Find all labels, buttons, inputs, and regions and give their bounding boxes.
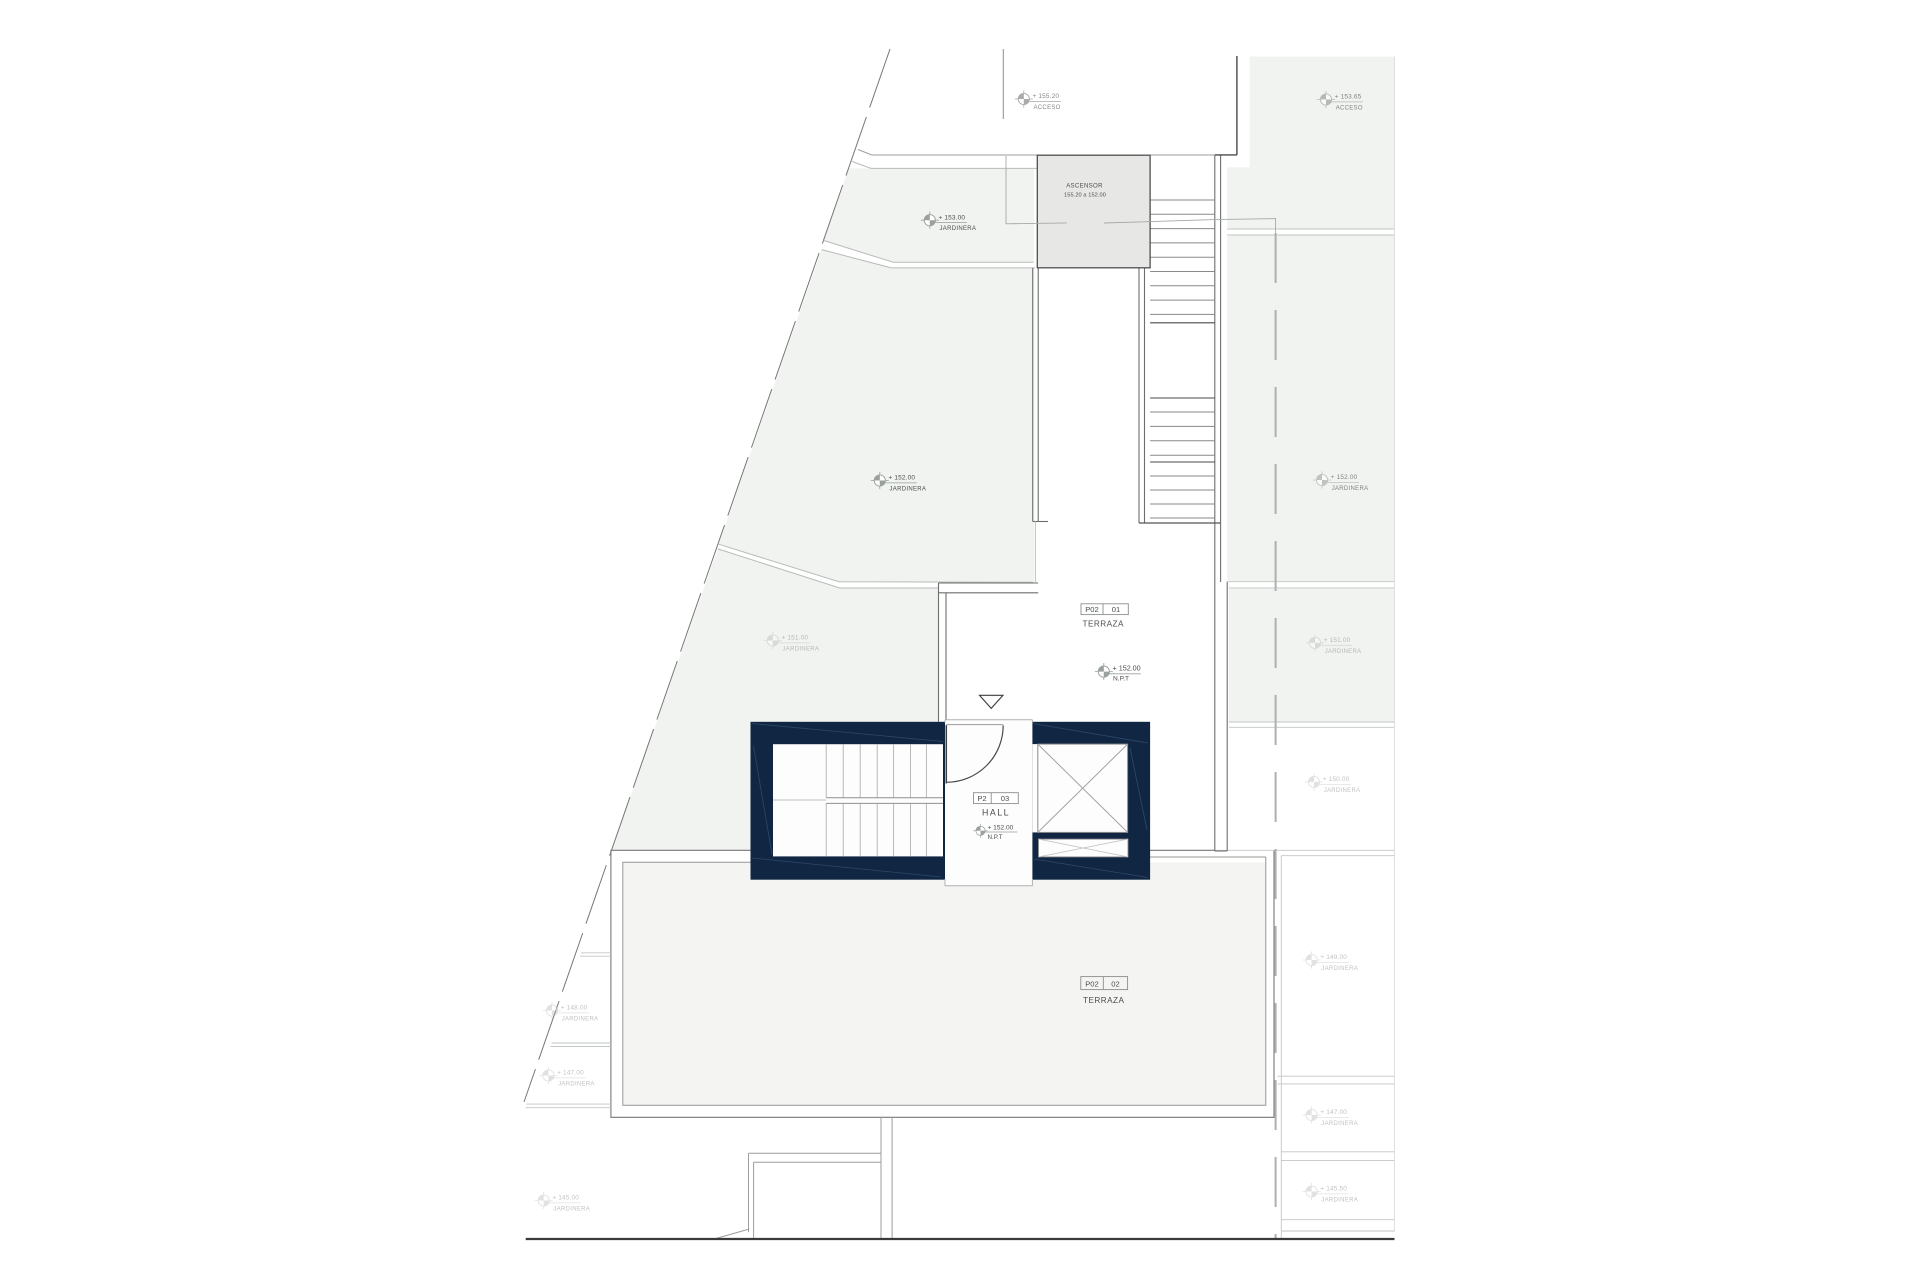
svg-text:N.P.T: N.P.T: [988, 834, 1003, 841]
svg-text:P2: P2: [977, 794, 986, 803]
svg-text:+ 149.00: + 149.00: [1320, 954, 1347, 961]
svg-text:+ 152.00: + 152.00: [1331, 474, 1358, 481]
svg-text:N.P.T: N.P.T: [1113, 676, 1129, 683]
svg-text:JARDINERA: JARDINERA: [553, 1207, 590, 1213]
svg-text:ASCENSOR: ASCENSOR: [1066, 183, 1103, 190]
svg-text:JARDINERA: JARDINERA: [1321, 1121, 1358, 1127]
svg-text:P02: P02: [1085, 605, 1099, 614]
svg-text:03: 03: [1001, 794, 1009, 803]
svg-text:JARDINERA: JARDINERA: [783, 647, 820, 653]
svg-text:+ 147.00: + 147.00: [1320, 1109, 1347, 1116]
svg-text:+ 152.00: + 152.00: [988, 824, 1014, 831]
svg-text:+ 147.00: + 147.00: [557, 1070, 584, 1077]
svg-text:ACCESO: ACCESO: [1336, 106, 1363, 112]
svg-text:+ 153.00: + 153.00: [939, 214, 966, 221]
svg-text:+ 151.00: + 151.00: [782, 635, 809, 642]
svg-text:TERRAZA: TERRAZA: [1083, 619, 1124, 628]
svg-text:+ 148.00: + 148.00: [561, 1005, 588, 1012]
svg-text:02: 02: [1111, 979, 1119, 988]
svg-text:JARDINERA: JARDINERA: [562, 1017, 599, 1023]
svg-text:+ 145.50: + 145.50: [1320, 1186, 1347, 1193]
svg-text:01: 01: [1112, 605, 1120, 614]
svg-text:+ 152.00: + 152.00: [1113, 663, 1141, 672]
svg-text:TERRAZA: TERRAZA: [1083, 996, 1124, 1005]
svg-text:JARDINERA: JARDINERA: [1324, 788, 1361, 794]
svg-text:+ 155.20: + 155.20: [1033, 93, 1060, 100]
svg-text:HALL: HALL: [982, 808, 1010, 818]
svg-text:JARDINERA: JARDINERA: [1321, 1198, 1358, 1204]
svg-text:JARDINERA: JARDINERA: [558, 1082, 595, 1088]
svg-text:JARDINERA: JARDINERA: [1332, 486, 1369, 492]
svg-text:JARDINERA: JARDINERA: [1325, 649, 1362, 655]
svg-text:+ 150.00: + 150.00: [1323, 776, 1350, 783]
svg-text:+ 153.65: + 153.65: [1335, 94, 1362, 101]
svg-text:155.20 a 152.00: 155.20 a 152.00: [1064, 193, 1106, 199]
svg-text:+ 152.00: + 152.00: [889, 475, 916, 482]
svg-text:JARDINERA: JARDINERA: [1321, 966, 1358, 972]
svg-text:+ 151.00: + 151.00: [1324, 637, 1351, 644]
svg-text:JARDINERA: JARDINERA: [890, 487, 927, 493]
svg-text:P02: P02: [1085, 979, 1099, 988]
svg-text:+ 145.00: + 145.00: [552, 1195, 579, 1202]
svg-text:ACCESO: ACCESO: [1034, 105, 1061, 111]
svg-text:JARDINERA: JARDINERA: [940, 226, 977, 232]
